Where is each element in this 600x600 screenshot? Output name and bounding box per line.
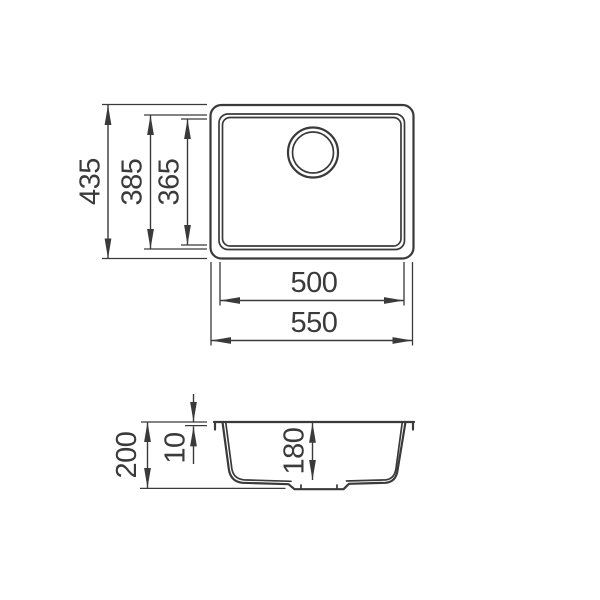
dimension-bowl-height: 365 — [154, 119, 208, 245]
bowl-outer-outline — [223, 422, 406, 489]
dimension-bowl-depth: 180 — [279, 423, 313, 480]
dim-label-bowl-height: 365 — [154, 159, 186, 206]
dim-label-bowl-depth: 180 — [279, 428, 311, 475]
dim-label-overall-depth: 200 — [111, 432, 143, 479]
dim-label-overall-height: 435 — [75, 158, 107, 205]
dim-label-rim-thickness: 10 — [160, 432, 192, 463]
drain-icon — [288, 128, 338, 178]
dimension-rim-thickness: 10 — [160, 394, 208, 464]
dimension-bowl-width: 500 — [220, 262, 404, 306]
sink-rim-inner-line — [223, 118, 402, 247]
bowl-inner-outline-right — [347, 422, 403, 481]
dim-label-overall-width: 550 — [291, 307, 338, 339]
dim-label-rim-height: 385 — [117, 159, 149, 206]
top-view — [211, 105, 414, 259]
sink-dimension-drawing: 435 385 365 500 550 — [0, 0, 600, 600]
dim-label-bowl-width: 500 — [291, 267, 338, 299]
sink-rim-outer-line — [219, 114, 405, 250]
